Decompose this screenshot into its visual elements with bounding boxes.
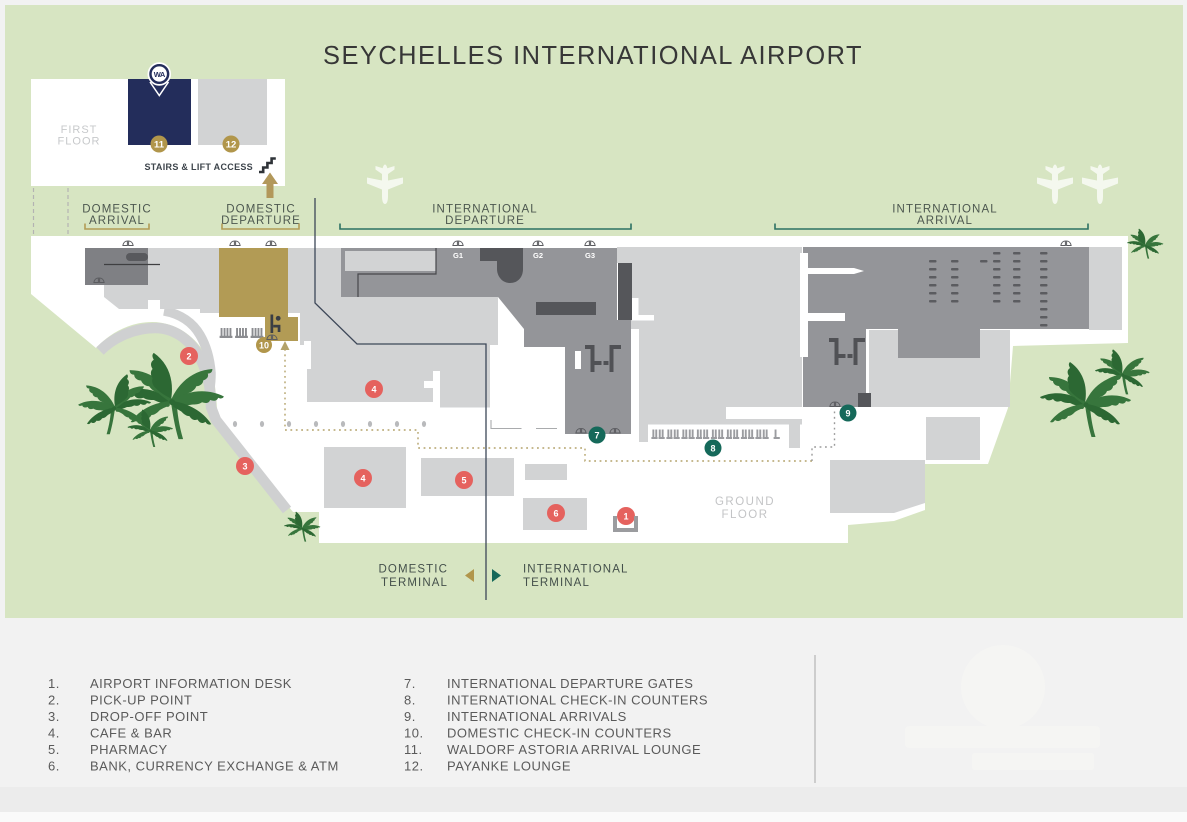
svg-text:G3: G3: [585, 251, 595, 260]
svg-text:INTERNATIONAL ARRIVALS: INTERNATIONAL ARRIVALS: [447, 709, 627, 724]
svg-text:INTERNATIONAL: INTERNATIONAL: [432, 204, 537, 216]
svg-text:PAYANKE LOUNGE: PAYANKE LOUNGE: [447, 759, 571, 774]
svg-text:TERMINAL: TERMINAL: [381, 577, 448, 589]
svg-text:9.: 9.: [404, 709, 416, 724]
svg-text:FLOOR: FLOOR: [721, 509, 768, 521]
svg-text:6.: 6.: [48, 759, 60, 774]
svg-text:5: 5: [461, 476, 466, 486]
svg-text:7.: 7.: [404, 676, 416, 691]
svg-text:DROP-OFF POINT: DROP-OFF POINT: [90, 709, 208, 724]
svg-text:ARRIVAL: ARRIVAL: [89, 215, 145, 227]
svg-text:4: 4: [360, 474, 365, 484]
svg-text:11.: 11.: [404, 742, 423, 757]
svg-text:PHARMACY: PHARMACY: [90, 742, 168, 757]
svg-text:BANK, CURRENCY EXCHANGE & ATM: BANK, CURRENCY EXCHANGE & ATM: [90, 759, 339, 774]
svg-text:WA: WA: [154, 70, 166, 79]
svg-text:G2: G2: [533, 251, 543, 260]
svg-text:SEYCHELLES INTERNATIONAL AIRPO: SEYCHELLES INTERNATIONAL AIRPORT: [323, 40, 863, 70]
svg-text:8: 8: [710, 444, 715, 454]
svg-text:WALDORF ASTORIA ARRIVAL LOUNGE: WALDORF ASTORIA ARRIVAL LOUNGE: [447, 742, 701, 757]
svg-text:DOMESTIC: DOMESTIC: [82, 204, 152, 216]
svg-text:DOMESTIC CHECK-IN COUNTERS: DOMESTIC CHECK-IN COUNTERS: [447, 726, 672, 741]
svg-text:GROUND: GROUND: [715, 496, 775, 508]
svg-text:DEPARTURE: DEPARTURE: [221, 215, 301, 227]
svg-text:1.: 1.: [48, 676, 60, 691]
svg-text:10: 10: [259, 341, 269, 351]
svg-text:FIRST: FIRST: [61, 124, 98, 136]
svg-text:12.: 12.: [404, 759, 424, 774]
svg-text:6: 6: [553, 509, 558, 519]
svg-text:G1: G1: [453, 251, 463, 260]
svg-text:ARRIVAL: ARRIVAL: [917, 215, 973, 227]
svg-text:TERMINAL: TERMINAL: [523, 577, 590, 589]
svg-text:CAFE & BAR: CAFE & BAR: [90, 726, 172, 741]
svg-text:12: 12: [226, 140, 237, 151]
svg-text:2: 2: [186, 352, 191, 362]
svg-text:1: 1: [623, 512, 628, 522]
svg-text:INTERNATIONAL: INTERNATIONAL: [523, 564, 628, 576]
svg-text:INTERNATIONAL DEPARTURE GATES: INTERNATIONAL DEPARTURE GATES: [447, 676, 693, 691]
svg-text:INTERNATIONAL: INTERNATIONAL: [892, 204, 997, 216]
svg-text:3: 3: [242, 462, 247, 472]
svg-text:FLOOR: FLOOR: [58, 136, 101, 148]
svg-text:DEPARTURE: DEPARTURE: [445, 215, 525, 227]
svg-text:PICK-UP POINT: PICK-UP POINT: [90, 693, 192, 708]
svg-text:DOMESTIC: DOMESTIC: [226, 204, 296, 216]
svg-text:5.: 5.: [48, 742, 60, 757]
svg-text:9: 9: [845, 409, 850, 419]
svg-text:DOMESTIC: DOMESTIC: [379, 564, 449, 576]
svg-text:3.: 3.: [48, 709, 60, 724]
svg-text:2.: 2.: [48, 693, 60, 708]
svg-text:AIRPORT INFORMATION DESK: AIRPORT INFORMATION DESK: [90, 676, 292, 691]
svg-text:4: 4: [371, 385, 376, 395]
svg-text:8.: 8.: [404, 693, 416, 708]
svg-text:STAIRS & LIFT ACCESS: STAIRS & LIFT ACCESS: [144, 162, 253, 172]
svg-text:7: 7: [594, 431, 599, 441]
svg-text:INTERNATIONAL CHECK-IN COUNTER: INTERNATIONAL CHECK-IN COUNTERS: [447, 693, 708, 708]
svg-text:10.: 10.: [404, 726, 424, 741]
svg-text:11: 11: [154, 140, 165, 151]
svg-text:4.: 4.: [48, 726, 60, 741]
